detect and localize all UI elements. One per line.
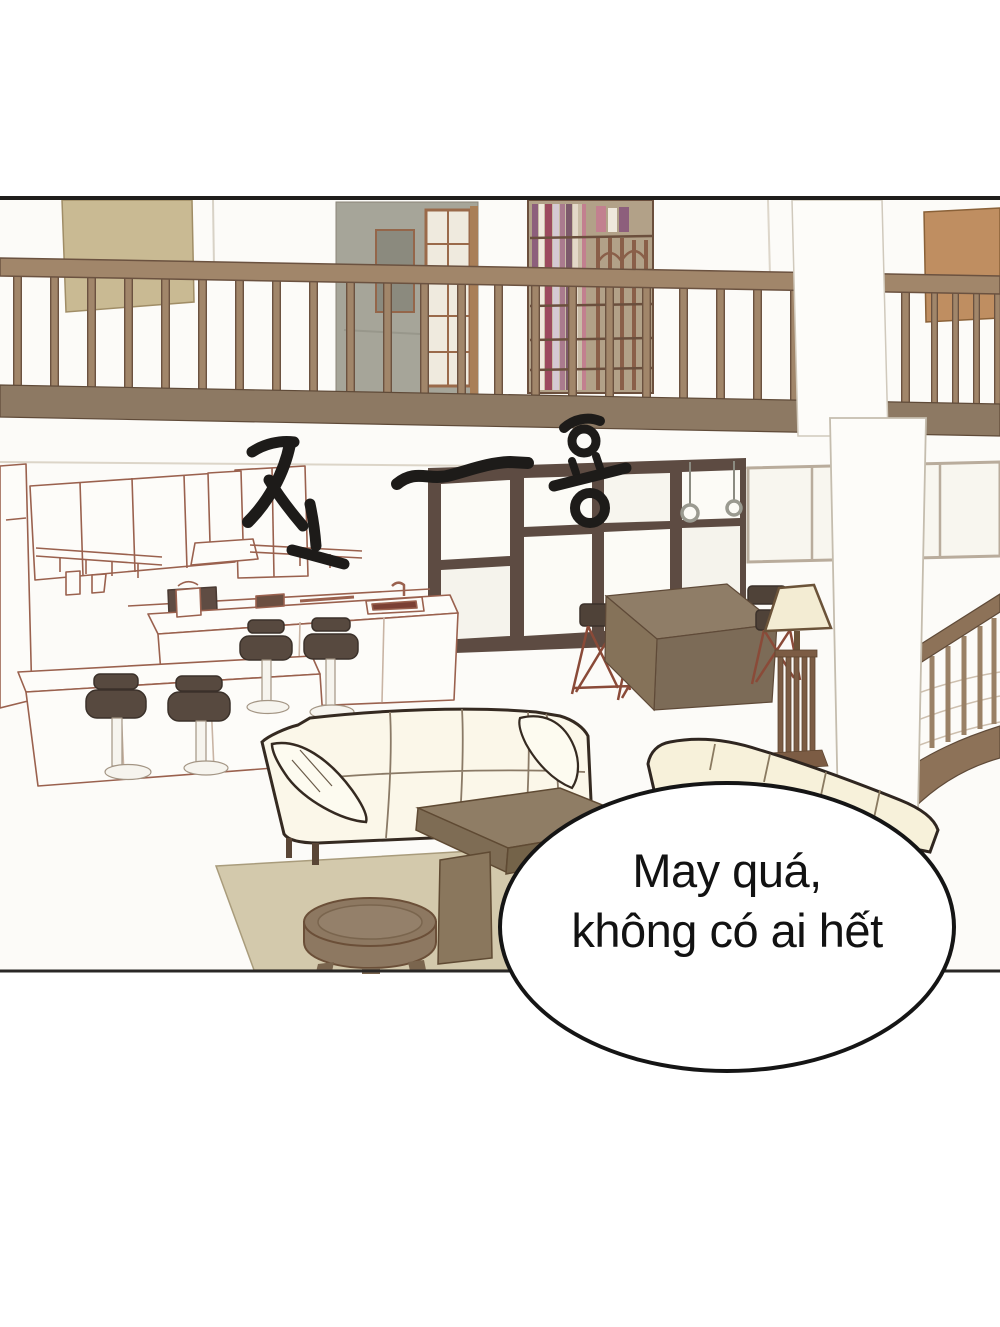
speech-line-1: May quá, bbox=[571, 841, 882, 901]
stool-top-inner bbox=[318, 905, 422, 939]
hanging-utensil bbox=[66, 571, 80, 595]
sofa-leg bbox=[312, 843, 319, 865]
range-hood bbox=[208, 471, 243, 543]
window-pane bbox=[604, 473, 670, 523]
pillar-main bbox=[830, 418, 926, 812]
wall-corner-line bbox=[213, 200, 214, 268]
pillar-upper bbox=[792, 200, 888, 436]
kettle bbox=[176, 588, 201, 617]
comic-page: May quá, không có ai hết bbox=[0, 0, 1000, 1327]
book bbox=[608, 208, 617, 232]
pot bbox=[256, 594, 284, 608]
panel-artwork bbox=[0, 0, 1000, 1327]
book bbox=[619, 207, 629, 232]
speech-bubble-text: May quá, không có ai hết bbox=[571, 841, 882, 960]
speech-line-2: không có ai hết bbox=[571, 901, 882, 961]
railing-balusters bbox=[0, 274, 920, 404]
window-pane bbox=[441, 480, 510, 560]
book bbox=[596, 206, 606, 232]
sofa-leg bbox=[286, 838, 292, 858]
coffee-table-leg bbox=[438, 852, 492, 964]
speech-bubble: May quá, không có ai hết bbox=[498, 781, 956, 1073]
hanging-utensil bbox=[92, 574, 106, 593]
table-side bbox=[654, 624, 777, 710]
railing-balusters-right bbox=[920, 291, 1000, 406]
sfx-stroke bbox=[310, 504, 316, 546]
